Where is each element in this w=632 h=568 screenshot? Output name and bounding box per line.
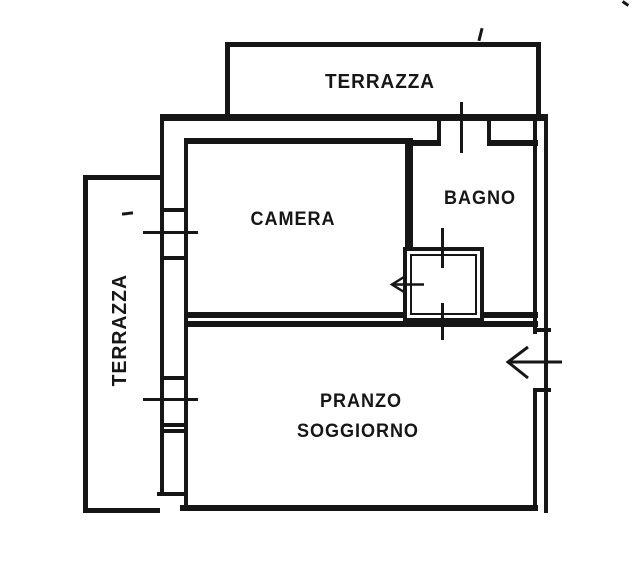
wall-apartment-bottom xyxy=(180,505,538,511)
living-dining-label-line1: PRANZO xyxy=(304,392,418,411)
wall-camera-bagno-divider xyxy=(405,140,413,250)
corner-scan-speck xyxy=(622,0,629,6)
wall-bagno-top-left xyxy=(413,140,437,146)
wall-right-inner-upper xyxy=(533,121,537,334)
wall-right-inner-lower xyxy=(533,388,537,505)
bagno-window-jamb-left xyxy=(437,121,441,146)
wall-top-terrace-right xyxy=(536,42,541,117)
window-rung xyxy=(160,208,188,212)
wall-bagno-top-right xyxy=(491,140,538,146)
shaft-door-arrow-icon xyxy=(385,270,430,300)
door-opening-tick-bottom xyxy=(441,303,444,340)
bagno-window-jamb-right xyxy=(487,121,491,146)
wall-apartment-top xyxy=(162,114,548,121)
window-rung xyxy=(160,429,188,433)
terrace-left-label: TERRAZZA xyxy=(110,280,132,387)
wall-left-terrace-bottom xyxy=(83,508,160,513)
wall-top-terrace-left xyxy=(225,42,230,117)
door-rung-top xyxy=(533,328,551,332)
living-dining-label-line2: SOGGIORNO xyxy=(282,422,434,441)
terrace-top-label: TERRAZZA xyxy=(322,72,438,92)
entrance-arrow-icon xyxy=(500,340,570,385)
wall-right-outer xyxy=(544,114,548,513)
bathroom-label: BAGNO xyxy=(433,189,528,208)
wall-camera-top xyxy=(186,138,413,144)
terrace-dash-mark xyxy=(122,211,133,215)
bagno-window-tick xyxy=(460,102,463,153)
window-rung xyxy=(160,256,188,260)
wall-mid-upper xyxy=(186,312,538,318)
window-sill-line xyxy=(143,231,198,234)
door-rung-bottom xyxy=(533,388,551,392)
wall-mid-lower xyxy=(186,321,538,327)
wall-left-terrace-top xyxy=(83,175,162,180)
door-opening-tick-top xyxy=(441,228,444,268)
apostrophe-scan-mark xyxy=(477,28,483,41)
bedroom-label: CAMERA xyxy=(236,210,350,229)
wall-top-terrace-top xyxy=(225,42,541,47)
wall-left-terrace-left xyxy=(83,175,88,513)
window-rung xyxy=(160,423,188,427)
window-sill-line xyxy=(143,398,198,401)
window-rung xyxy=(157,492,187,496)
floor-plan: TERRAZZA TERRAZZA CAME xyxy=(0,0,632,568)
window-rung xyxy=(160,376,188,380)
wall-left-outer xyxy=(160,114,164,496)
